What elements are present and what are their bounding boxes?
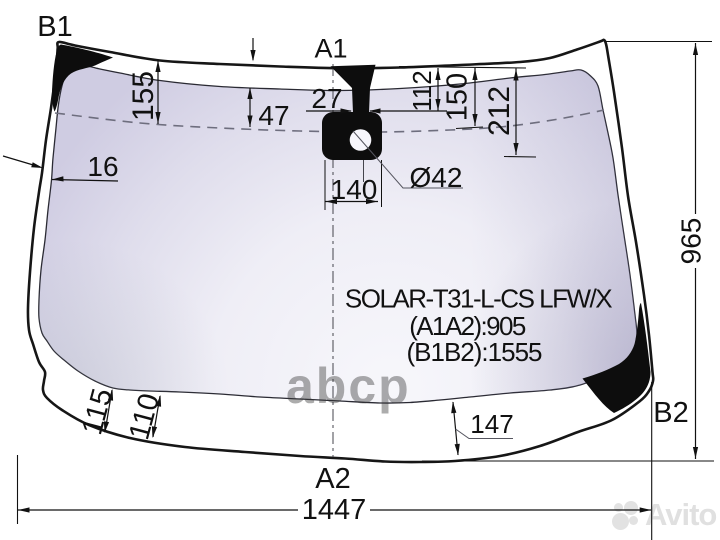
svg-text:B1: B1 xyxy=(37,11,72,43)
svg-text:A2: A2 xyxy=(315,463,350,495)
svg-text:Ø42: Ø42 xyxy=(410,162,463,193)
svg-text:965: 965 xyxy=(675,218,706,265)
svg-text:(B1B2):1555: (B1B2):1555 xyxy=(407,337,543,367)
svg-text:1447: 1447 xyxy=(302,494,367,526)
svg-text:150: 150 xyxy=(442,73,474,121)
svg-text:abcp: abcp xyxy=(286,358,411,414)
svg-text:140: 140 xyxy=(331,174,378,205)
svg-text:155: 155 xyxy=(127,71,160,121)
svg-text:A1: A1 xyxy=(314,34,347,64)
svg-text:47: 47 xyxy=(258,100,289,131)
svg-text:16: 16 xyxy=(87,151,118,182)
svg-text:212: 212 xyxy=(483,86,516,136)
svg-text:Avito: Avito xyxy=(645,497,716,532)
svg-text:112: 112 xyxy=(407,70,437,111)
svg-text:SOLAR-T31-L-CS LFW/X: SOLAR-T31-L-CS LFW/X xyxy=(345,284,612,314)
svg-text:147: 147 xyxy=(470,409,513,439)
svg-text:B2: B2 xyxy=(653,397,688,429)
svg-text:27: 27 xyxy=(311,83,342,114)
